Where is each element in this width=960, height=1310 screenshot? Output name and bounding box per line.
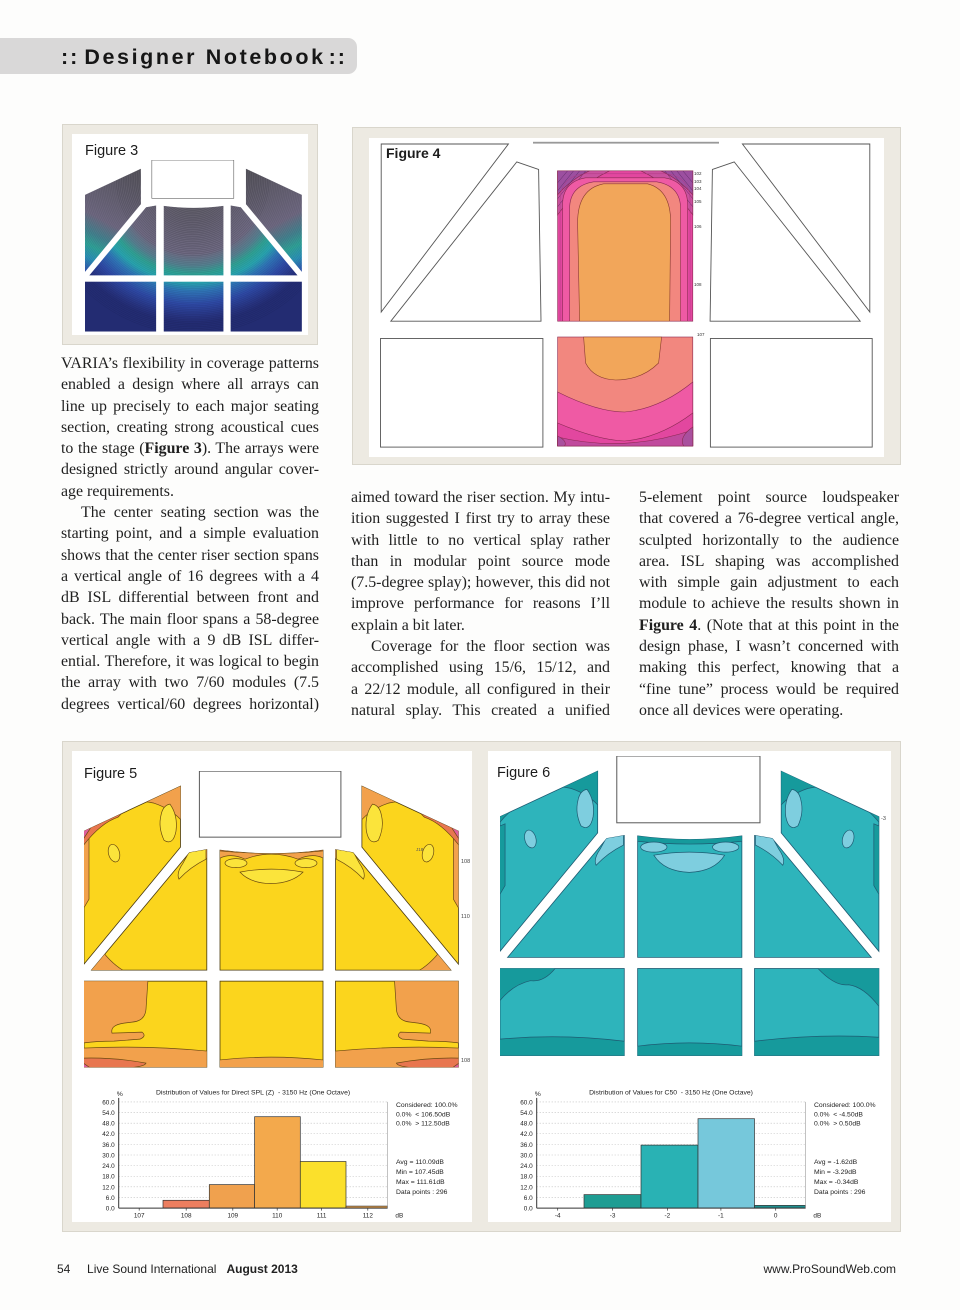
svg-text:110: 110 — [272, 1213, 283, 1220]
svg-text:0.0: 0.0 — [106, 1206, 115, 1213]
svg-text:60.0: 60.0 — [102, 1099, 115, 1106]
svg-text:J18: J18 — [416, 847, 424, 852]
svg-text:30.0: 30.0 — [102, 1152, 115, 1159]
svg-text:107: 107 — [134, 1213, 145, 1220]
svg-text:0.0: 0.0 — [524, 1206, 533, 1213]
svg-text:dB: dB — [395, 1213, 403, 1220]
svg-text:24.0: 24.0 — [520, 1163, 533, 1170]
svg-text:54.0: 54.0 — [520, 1110, 533, 1117]
svg-text:Distribution of Values for Dir: Distribution of Values for Direct SPL (Z… — [156, 1090, 350, 1097]
svg-text:-3: -3 — [610, 1213, 616, 1220]
svg-text:107: 107 — [697, 332, 705, 337]
svg-text:dB: dB — [813, 1213, 821, 1220]
svg-text:0.0% < -4.50dB: 0.0% < -4.50dB — [814, 1111, 863, 1118]
svg-text:36.0: 36.0 — [520, 1142, 533, 1149]
svg-text:110: 110 — [461, 914, 470, 920]
svg-text:Data points : 296: Data points : 296 — [814, 1189, 866, 1196]
svg-text:Avg = -1.62dB: Avg = -1.62dB — [814, 1159, 858, 1166]
svg-text:Min = -3.29dB: Min = -3.29dB — [814, 1169, 857, 1176]
svg-text:54.0: 54.0 — [102, 1110, 115, 1117]
svg-text:6.0: 6.0 — [106, 1195, 115, 1202]
svg-text:0: 0 — [774, 1213, 778, 1220]
svg-text:36.0: 36.0 — [102, 1142, 115, 1149]
svg-text:Considered: 100.0%: Considered: 100.0% — [814, 1102, 876, 1109]
svg-text:42.0: 42.0 — [102, 1131, 115, 1138]
svg-text:Considered: 100.0%: Considered: 100.0% — [396, 1102, 458, 1109]
svg-text:12.0: 12.0 — [520, 1184, 533, 1191]
svg-text:-4: -4 — [555, 1213, 561, 1220]
svg-text:108: 108 — [694, 282, 702, 287]
svg-text:18.0: 18.0 — [520, 1174, 533, 1181]
svg-text:109: 109 — [227, 1213, 238, 1220]
svg-text:12.0: 12.0 — [102, 1184, 115, 1191]
svg-text:%: % — [117, 1091, 123, 1098]
svg-text:111: 111 — [317, 1213, 327, 1220]
svg-text:103: 103 — [694, 179, 702, 184]
svg-text:108: 108 — [461, 859, 470, 865]
svg-text:Distribution of Values for C50: Distribution of Values for C50 - 3150 Hz… — [589, 1090, 753, 1097]
svg-text:102: 102 — [694, 171, 702, 176]
svg-text:105: 105 — [694, 199, 702, 204]
svg-text:Avg = 110.09dB: Avg = 110.09dB — [396, 1159, 444, 1166]
svg-text:106: 106 — [694, 224, 702, 229]
svg-text:48.0: 48.0 — [102, 1121, 115, 1128]
svg-text:-1: -1 — [718, 1213, 724, 1220]
svg-text:Max = -0.34dB: Max = -0.34dB — [814, 1179, 859, 1186]
svg-text:108: 108 — [461, 1058, 470, 1064]
svg-text:-2: -2 — [665, 1213, 671, 1220]
svg-text:60.0: 60.0 — [520, 1099, 533, 1106]
svg-text:-3: -3 — [881, 816, 886, 822]
svg-text:6.0: 6.0 — [524, 1195, 533, 1202]
svg-text:104: 104 — [694, 186, 702, 191]
svg-text:0.0% > 112.50dB: 0.0% > 112.50dB — [396, 1121, 450, 1128]
svg-text:30.0: 30.0 — [520, 1152, 533, 1159]
svg-text:Data points : 296: Data points : 296 — [396, 1189, 448, 1196]
svg-text:18.0: 18.0 — [102, 1174, 115, 1181]
svg-text:112: 112 — [363, 1213, 374, 1220]
svg-text:0.0% < 106.50dB: 0.0% < 106.50dB — [396, 1111, 451, 1118]
svg-text:48.0: 48.0 — [520, 1121, 533, 1128]
svg-text:Min = 107.45dB: Min = 107.45dB — [396, 1169, 444, 1176]
svg-text:0.0% > 0.50dB: 0.0% > 0.50dB — [814, 1121, 861, 1128]
svg-text:108: 108 — [181, 1213, 192, 1220]
svg-text:42.0: 42.0 — [520, 1131, 533, 1138]
svg-text:Max = 111.61dB: Max = 111.61dB — [396, 1179, 445, 1186]
svg-text:%: % — [535, 1091, 541, 1098]
svg-text:24.0: 24.0 — [102, 1163, 115, 1170]
